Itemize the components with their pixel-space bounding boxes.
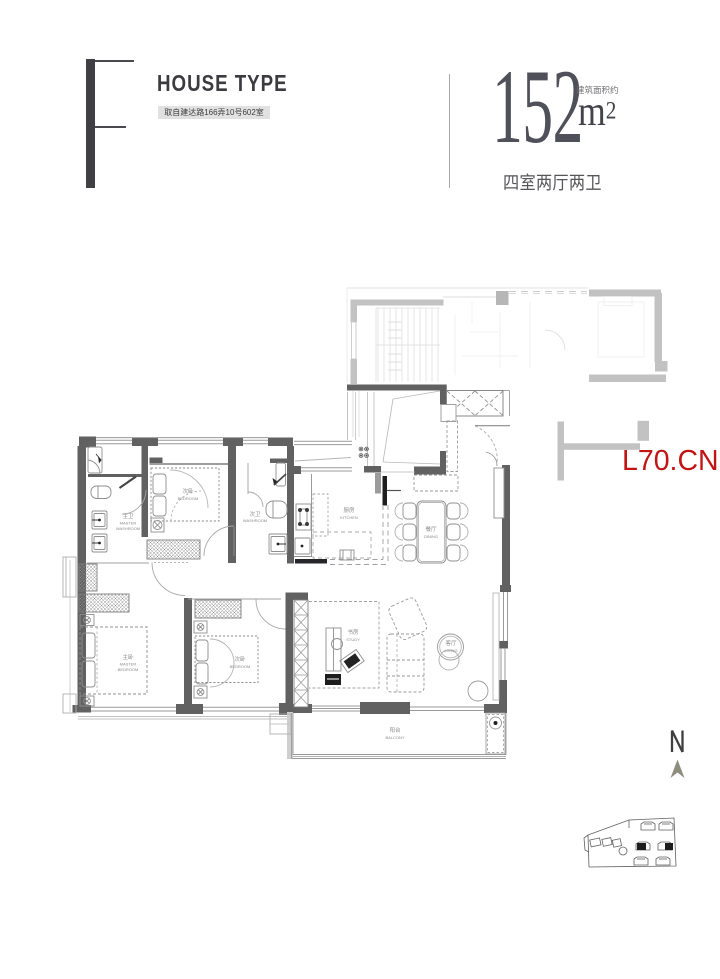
svg-text:MASTER: MASTER xyxy=(120,662,137,667)
svg-text:阳台: 阳台 xyxy=(389,726,401,734)
svg-text:主卫: 主卫 xyxy=(122,512,134,520)
svg-text:次卧: 次卧 xyxy=(182,487,194,495)
svg-text:BEDROOM: BEDROOM xyxy=(178,496,199,501)
svg-text:BEDROOM: BEDROOM xyxy=(118,667,139,672)
svg-text:主卧: 主卧 xyxy=(122,653,134,661)
svg-text:WASHROOM: WASHROOM xyxy=(243,518,267,523)
svg-text:次卫: 次卫 xyxy=(249,510,261,518)
svg-text:BALCONY: BALCONY xyxy=(385,735,404,740)
svg-text:STUDY: STUDY xyxy=(346,637,360,642)
svg-text:次卧: 次卧 xyxy=(234,655,246,663)
svg-text:MASTER: MASTER xyxy=(120,521,137,526)
svg-text:客厅: 客厅 xyxy=(445,639,457,647)
svg-text:DINING: DINING xyxy=(424,534,438,539)
svg-text:LIVING: LIVING xyxy=(444,648,457,653)
svg-text:BEDROOM: BEDROOM xyxy=(230,664,251,669)
svg-text:WASHROOM: WASHROOM xyxy=(116,526,140,531)
svg-text:书房: 书房 xyxy=(347,628,359,636)
svg-text:餐厅: 餐厅 xyxy=(425,525,437,533)
svg-text:厨房: 厨房 xyxy=(343,506,355,514)
svg-text:KITCHEN: KITCHEN xyxy=(340,515,358,520)
